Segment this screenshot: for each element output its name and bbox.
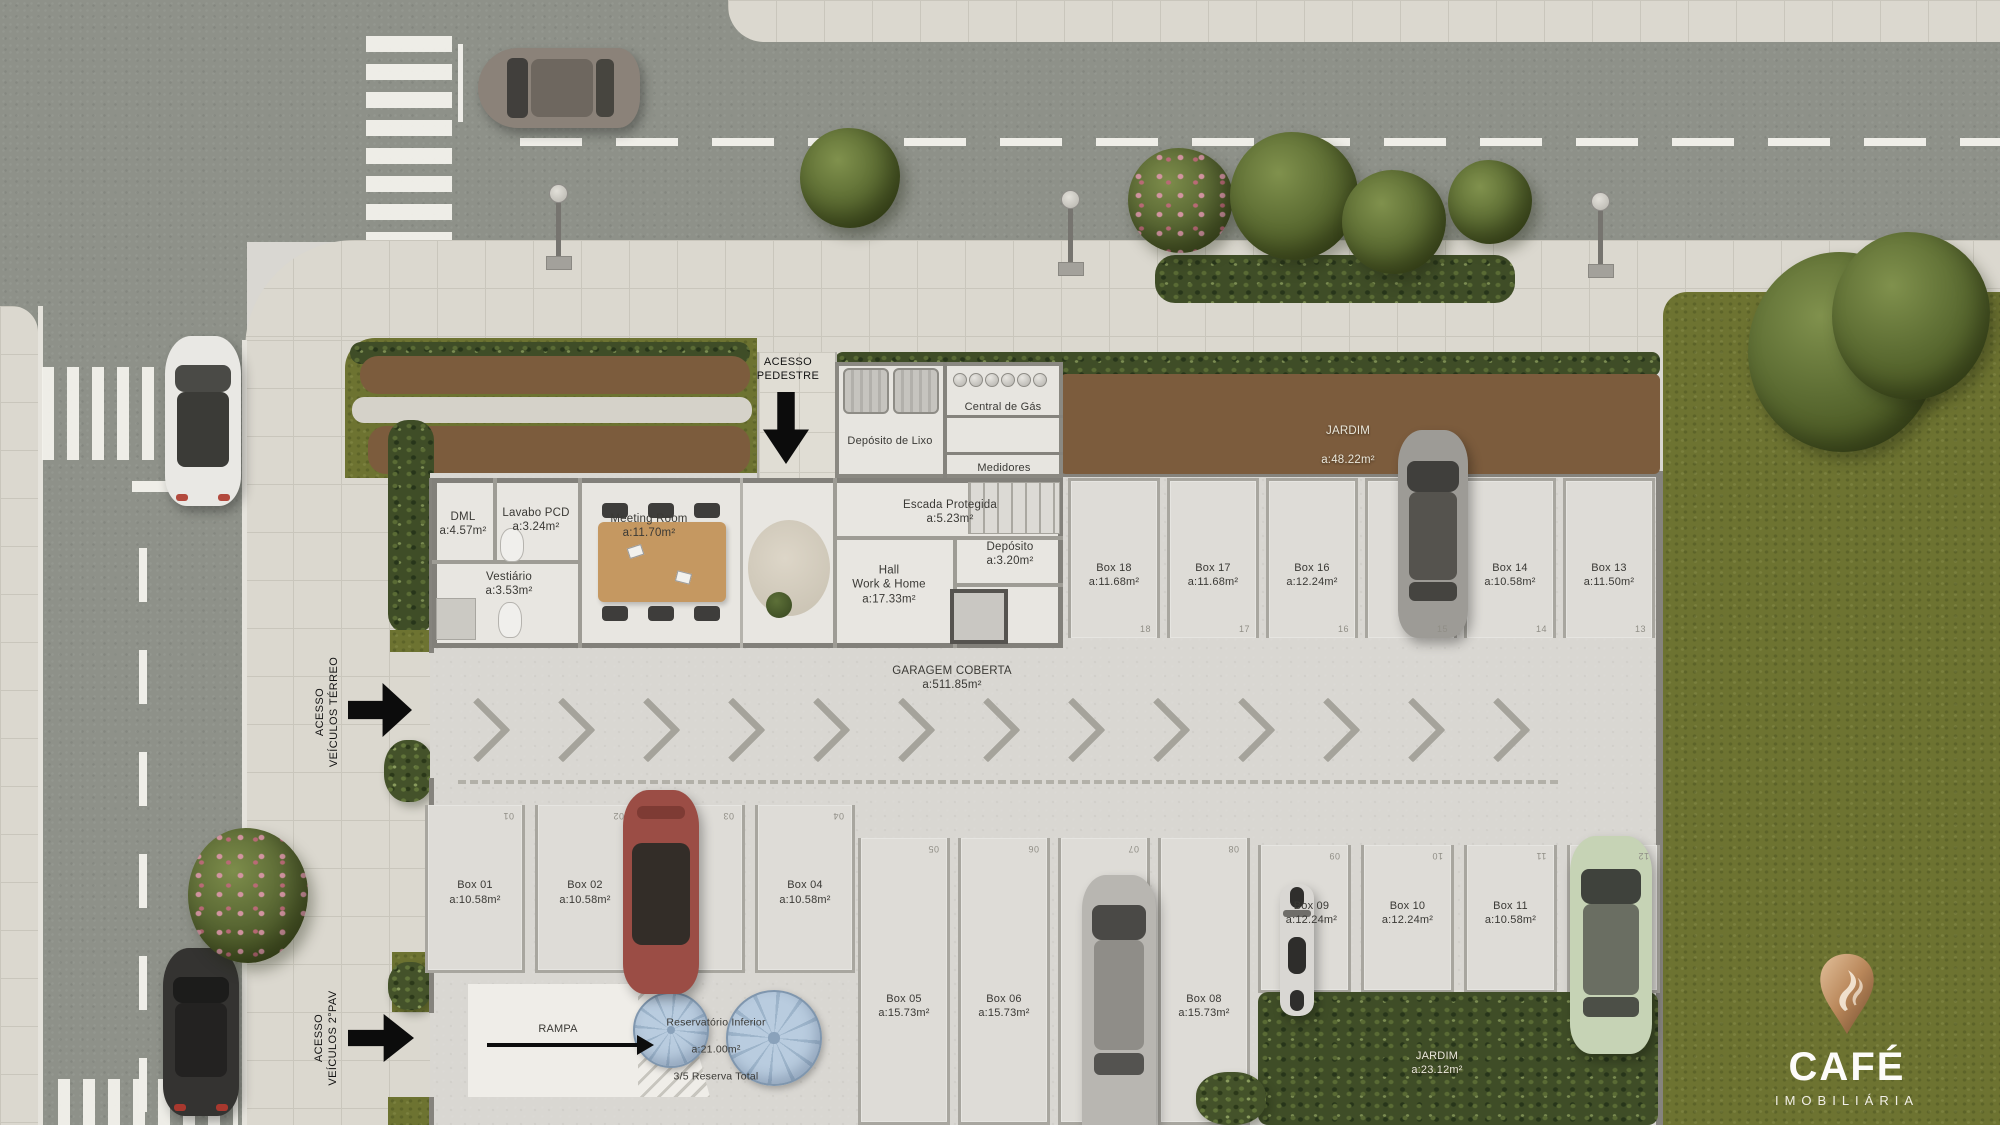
vestiario-label: Vestiárioa:3.53m² <box>486 555 533 599</box>
elevator <box>950 589 1008 644</box>
stall-number: 12 <box>1638 851 1649 861</box>
car-roof <box>531 59 593 117</box>
wall-deposito-elevator <box>957 583 1063 587</box>
stall-number: 05 <box>928 844 939 854</box>
box-label: Box 06a:15.73m² <box>978 991 1029 1019</box>
car-windshield <box>632 843 690 945</box>
car-windshield <box>1092 905 1147 940</box>
logo-brand-text: CAFÉ <box>1742 1045 1952 1090</box>
curb-left-road-east <box>242 340 247 1125</box>
bush-cluster-left <box>384 740 434 802</box>
car-windshield <box>507 58 528 119</box>
trash-bin <box>843 368 889 414</box>
service-wall-h2 <box>947 452 1063 455</box>
car-windshield <box>175 365 231 392</box>
box-label: Box 01a:10.58m² <box>449 878 500 906</box>
box-label: Box 16a:12.24m² <box>1286 561 1337 589</box>
gas-cylinder-icon <box>1033 373 1047 387</box>
chair <box>602 606 628 621</box>
parking-box-16: Box 16a:12.24m² 16 <box>1266 478 1358 638</box>
car-roof <box>177 392 229 467</box>
car-roof <box>1094 940 1144 1050</box>
big-tree-icon <box>1832 232 1990 400</box>
motorcycle-rear-wheel <box>1290 990 1305 1011</box>
chair <box>694 606 720 621</box>
street-lamp-icon <box>1058 262 1084 276</box>
car-rear-glass <box>1094 1053 1144 1076</box>
stall-number: 15 <box>1437 624 1448 634</box>
car-box-15 <box>1398 430 1468 638</box>
gas-cylinders <box>952 372 1062 390</box>
chair <box>694 503 720 518</box>
acesso-terreo-label: ACESSO VEÍCULOS TÉRREO <box>313 657 341 767</box>
motorcycle-seat <box>1288 937 1306 974</box>
deposito-lixo-label: Depósito de Lixo <box>847 434 932 448</box>
central-gas-label: Central de Gás <box>965 400 1042 414</box>
stall-number: 01 <box>503 811 514 821</box>
meeting-room-label: Meeting Rooma:11.70m² <box>610 497 687 541</box>
stall-number: 14 <box>1536 624 1547 634</box>
car-windshield <box>173 977 229 1004</box>
parking-box-02: Box 02a:10.58m² 02 <box>535 805 635 973</box>
street-lamp-icon <box>1061 190 1080 209</box>
stall-number: 13 <box>1635 624 1646 634</box>
garage-wall-left-c <box>429 1097 434 1125</box>
sink-counter <box>436 598 476 640</box>
car-box-12 <box>1570 836 1652 1054</box>
street-lamp-icon <box>1068 202 1073 264</box>
garagem-coberta-label: GARAGEM COBERTAa:511.85m² <box>892 649 1012 693</box>
car-box-07 <box>1082 875 1156 1125</box>
car-rear-glass <box>1583 997 1639 1017</box>
tree-icon <box>1448 160 1532 244</box>
trash-bin <box>893 368 939 414</box>
car-box-03 <box>623 790 699 994</box>
wall-lounge-hall <box>833 478 837 648</box>
car-roof <box>175 1003 227 1077</box>
stall-number: 06 <box>1028 844 1039 854</box>
hall-label: Hall Work & Homea:17.33m² <box>852 549 926 608</box>
verge-driveway1-top <box>390 630 432 652</box>
car-street-left-dark <box>163 948 239 1116</box>
sidewalk-hedge <box>1155 255 1515 303</box>
street-lamp-icon <box>1588 264 1614 278</box>
parking-box-06: Box 06a:15.73m² 06 <box>958 838 1050 1125</box>
stall-number: 07 <box>1128 844 1139 854</box>
parking-box-10: Box 10a:12.24m² 10 <box>1361 845 1454 993</box>
wall-dml-lavabo <box>493 478 497 563</box>
stall-number: 11 <box>1536 851 1546 861</box>
parking-box-11: Box 11a:10.58m² 11 <box>1464 845 1557 993</box>
escada-label: Escada Protegidaa:5.23m² <box>903 483 997 527</box>
box-label: Box 18a:11.68m² <box>1089 561 1140 589</box>
parked-car-street-top <box>478 48 640 128</box>
garden-shrub-row-1 <box>360 356 750 394</box>
box-label: Box 14a:10.58m² <box>1484 561 1535 589</box>
parking-box-05: Box 05a:15.73m² 05 <box>858 838 950 1125</box>
stall-number: 09 <box>1329 851 1340 861</box>
stall-number: 04 <box>833 811 844 821</box>
box-label: Box 11a:10.58m² <box>1485 899 1536 927</box>
stall-number: 10 <box>1432 851 1443 861</box>
lavabo-label: Lavabo PCDa:3.24m² <box>502 491 569 535</box>
car-street-left-white <box>165 336 241 506</box>
chair <box>648 606 674 621</box>
acesso-2pav-label: ACESSO VEÍCULOS 2°PAV <box>312 990 340 1085</box>
logo-subtitle-text: IMOBILIÁRIA <box>1742 1093 1952 1108</box>
car-roof <box>1583 904 1639 996</box>
sidewalk-far-left <box>0 306 38 1125</box>
bush-cluster-bottom <box>1196 1072 1266 1125</box>
tree-icon <box>1342 170 1446 274</box>
stall-number: 17 <box>1239 624 1250 634</box>
box-label: Box 05a:15.73m² <box>878 991 929 1019</box>
stall-number: 08 <box>1228 844 1239 854</box>
car-roof <box>1409 492 1457 579</box>
aisle-dashed-line <box>458 780 1558 784</box>
medidores-label: Medidores <box>977 461 1030 475</box>
flowering-tree-icon <box>1128 148 1233 253</box>
gas-cylinder-icon <box>985 373 999 387</box>
deposito-label: Depósitoa:3.20m² <box>987 525 1034 569</box>
parking-box-13: Box 13a:11.50m² 13 <box>1563 478 1655 638</box>
box-label: Box 13a:11.50m² <box>1584 561 1635 589</box>
tree-icon <box>800 128 900 228</box>
car-hood <box>637 806 686 818</box>
stall-number: 18 <box>1140 624 1151 634</box>
car-rear-glass <box>596 59 614 117</box>
car-windshield <box>1407 461 1459 492</box>
service-wall-h1 <box>947 415 1063 418</box>
car-taillight <box>174 1104 186 1111</box>
cafe-imobiliaria-logo: CAFÉ IMOBILIÁRIA <box>1742 952 1952 1108</box>
street-lamp-icon <box>549 184 568 203</box>
ramp-surface <box>468 984 640 1097</box>
flowering-tree-icon <box>188 828 308 963</box>
car-taillight <box>176 494 188 501</box>
lounge-plant <box>766 592 792 618</box>
jardim-bottom-label: JARDIMa:23.12m² <box>1411 1035 1462 1077</box>
box-label: Box 04a:10.58m² <box>779 878 830 906</box>
service-wall-v <box>943 362 947 478</box>
street-lamp-icon <box>546 256 572 270</box>
street-lamp-icon <box>1591 192 1610 211</box>
parking-box-18: Box 18a:11.68m² 18 <box>1068 478 1160 638</box>
ramp-arrow-shaft <box>487 1043 639 1047</box>
boundary-plants-column <box>388 420 434 634</box>
street-lamp-icon <box>556 196 561 258</box>
gas-cylinder-icon <box>1017 373 1031 387</box>
sidewalk-top <box>728 0 2000 42</box>
box-label: Box 09a:12.24m² <box>1286 899 1337 927</box>
tree-icon <box>1230 132 1358 260</box>
acesso-pedestre-label: ACESSO PEDESTRE <box>757 355 820 383</box>
stall-number: 03 <box>723 811 734 821</box>
lane-dash-left-road <box>139 548 147 1125</box>
car-rear-glass <box>1409 582 1457 601</box>
parking-bay-line <box>458 44 463 122</box>
stall-number: 02 <box>613 811 624 821</box>
box-label: Box 08a:15.73m² <box>1178 991 1229 1019</box>
reservoir-label: Reservatório Inferior a:21.00m² 3/5 Rese… <box>666 1004 765 1085</box>
parking-box-14: Box 14a:10.58m² 14 <box>1464 478 1556 638</box>
gas-cylinder-icon <box>969 373 983 387</box>
wall-left-meeting <box>578 478 582 648</box>
parking-box-01: Box 01a:10.58m² 01 <box>425 805 525 973</box>
crosswalk-left-road <box>42 367 166 460</box>
site-plan-render: JARDIM a:48.22m² Depósito de Lixo Centra… <box>0 0 2000 1125</box>
gas-cylinder-icon <box>953 373 967 387</box>
car-windshield <box>1581 869 1642 904</box>
crosswalk-top-road <box>366 36 452 240</box>
car-taillight <box>216 1104 228 1111</box>
verge-bottom-corner <box>388 1097 432 1125</box>
ramp-arrow-head <box>637 1035 654 1055</box>
logo-pin-icon <box>1816 952 1878 1036</box>
box-label: Box 02a:10.58m² <box>559 878 610 906</box>
wall-meeting-lounge <box>740 478 743 648</box>
parking-box-04: Box 04a:10.58m² 04 <box>755 805 855 973</box>
jardim-top-label: JARDIM a:48.22m² <box>1321 409 1375 483</box>
gas-cylinder-icon <box>1001 373 1015 387</box>
dml-label: DMLa:4.57m² <box>440 495 487 539</box>
stall-number: 16 <box>1338 624 1349 634</box>
box-label: Box 10a:12.24m² <box>1382 899 1433 927</box>
car-taillight <box>218 494 230 501</box>
box-label: Box 17a:11.68m² <box>1188 561 1239 589</box>
rampa-label: RAMPA <box>538 1022 577 1036</box>
street-lamp-icon <box>1598 204 1603 266</box>
toilet-vestiario <box>498 602 522 638</box>
parking-box-17: Box 17a:11.68m² 17 <box>1167 478 1259 638</box>
